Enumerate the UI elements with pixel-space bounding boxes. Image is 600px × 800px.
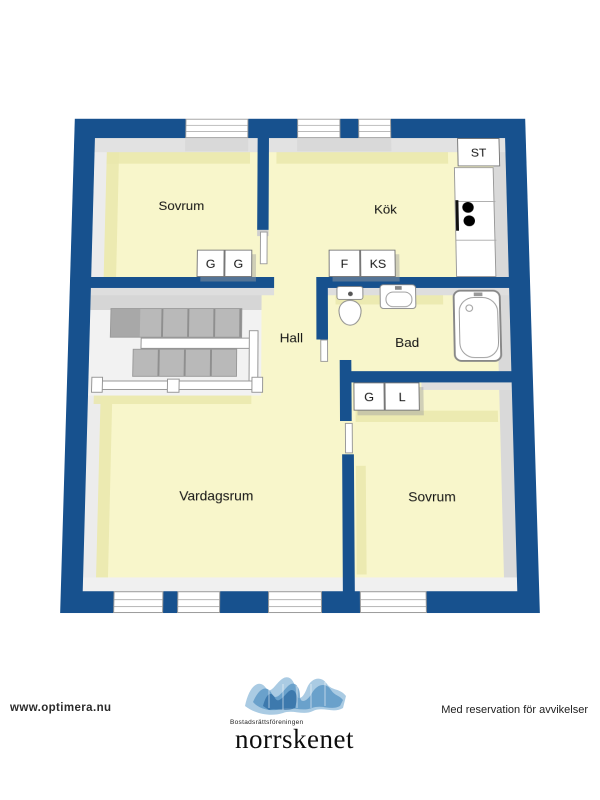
wall-sovrum-kok bbox=[257, 138, 269, 230]
freezer-label: F bbox=[341, 256, 349, 270]
wall-top bbox=[248, 119, 297, 138]
wardrobe-label: G bbox=[233, 256, 243, 270]
wardrobe-label: G bbox=[364, 389, 374, 403]
sink-basin bbox=[385, 292, 412, 308]
floor-shadow bbox=[107, 152, 251, 163]
counter-icon bbox=[454, 167, 496, 277]
room-label-sovrum1: Sovrum bbox=[158, 198, 204, 212]
window-icon bbox=[360, 591, 427, 613]
aurora-logo-icon bbox=[239, 672, 351, 718]
toilet-button bbox=[348, 292, 353, 297]
wall-top bbox=[340, 119, 358, 138]
floor-shadow bbox=[356, 466, 367, 575]
window-icon bbox=[185, 119, 248, 138]
counter-divider bbox=[456, 201, 496, 202]
wardrobe-box: G bbox=[353, 382, 384, 410]
logo-name-text: norrskenet bbox=[222, 724, 367, 755]
railing-post bbox=[251, 377, 263, 393]
wall-bottom bbox=[220, 591, 268, 613]
wall-face-bottom bbox=[83, 577, 518, 591]
wardrobe-box: G bbox=[224, 250, 252, 277]
wall-bad-hall bbox=[316, 288, 328, 340]
wall-face bbox=[421, 382, 511, 390]
window-icon bbox=[268, 591, 322, 613]
room-label-hall: Hall bbox=[280, 330, 303, 345]
window-sill bbox=[297, 138, 391, 151]
website-url: www.optimera.nu bbox=[10, 702, 111, 714]
cleaning-closet-label: ST bbox=[471, 146, 487, 159]
room-label-sovrum2: Sovrum bbox=[408, 489, 456, 504]
disclaimer-text: Med reservation för avvikelser bbox=[441, 704, 588, 716]
wardrobe-label: G bbox=[206, 256, 216, 270]
sink-tap bbox=[395, 286, 402, 290]
fridge-box: KS bbox=[360, 250, 396, 277]
floorplan: G G F KS ST G L Sovrum Kök Hal bbox=[55, 114, 545, 618]
window-icon bbox=[177, 591, 220, 613]
floor-shadow bbox=[356, 411, 499, 422]
railing-post bbox=[167, 379, 180, 393]
door-sovrum2 bbox=[345, 423, 353, 453]
room-label-kok: Kök bbox=[374, 202, 397, 216]
wardrobe-box: G bbox=[197, 250, 225, 277]
counter-divider bbox=[456, 240, 496, 241]
window-icon bbox=[113, 591, 163, 613]
room-label-bad: Bad bbox=[395, 335, 419, 350]
freezer-box: F bbox=[329, 250, 361, 277]
stove-edge bbox=[456, 200, 459, 231]
bathtub-drain bbox=[465, 304, 473, 311]
room-label-vardagsrum: Vardagsrum bbox=[179, 488, 253, 503]
stair-mid-railing bbox=[140, 338, 254, 349]
stair-side-rail bbox=[249, 330, 259, 382]
floor-shadow bbox=[276, 152, 448, 163]
window-icon bbox=[358, 119, 391, 138]
window-sill bbox=[185, 138, 248, 151]
stove-icon bbox=[463, 215, 475, 226]
linen-closet-label: L bbox=[399, 389, 406, 403]
norrskenet-logo: Bostadsrättsföreningen norrskenet bbox=[222, 672, 367, 755]
wall-bottom bbox=[163, 591, 177, 613]
wall-face bbox=[91, 288, 274, 295]
wall-bottom bbox=[322, 591, 360, 613]
window-icon bbox=[297, 119, 340, 138]
wall-bad-sovrum2 bbox=[351, 371, 511, 382]
stair-landing-step bbox=[111, 309, 141, 337]
stairs-icon bbox=[132, 349, 237, 377]
sink-icon bbox=[380, 284, 417, 309]
linen-closet-box: L bbox=[384, 382, 419, 410]
stove-icon bbox=[462, 202, 474, 213]
door-bad bbox=[320, 340, 328, 362]
door-sovrum1 bbox=[260, 232, 268, 265]
toilet-tank bbox=[336, 286, 363, 300]
bathtub-tap bbox=[474, 293, 483, 297]
wall-sovrum-hall bbox=[91, 277, 274, 288]
floorplan-page: G G F KS ST G L Sovrum Kök Hal bbox=[0, 0, 600, 800]
cleaning-closet-box: ST bbox=[457, 138, 500, 166]
railing-post bbox=[91, 377, 103, 393]
wall-vardagsrum-sovrum2 bbox=[342, 454, 355, 591]
fridge-label: KS bbox=[370, 256, 387, 270]
wall-stub-hall bbox=[340, 360, 352, 421]
bathtub-icon bbox=[453, 290, 503, 362]
